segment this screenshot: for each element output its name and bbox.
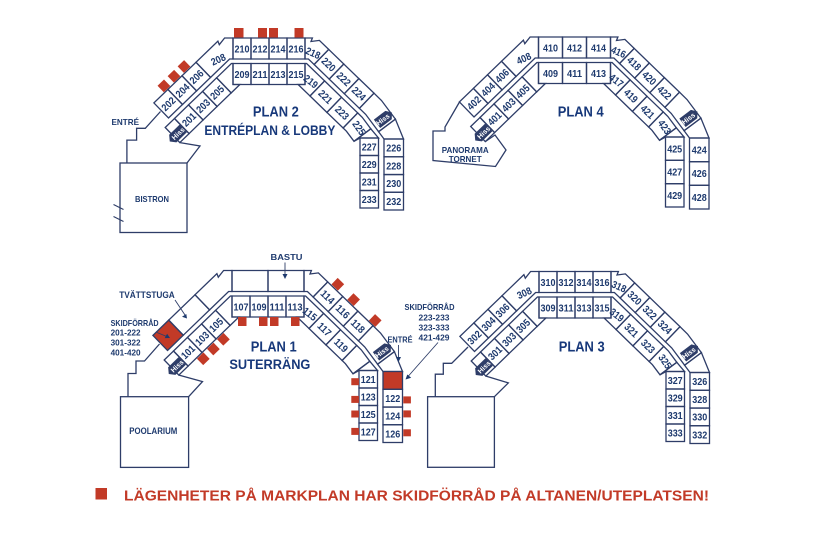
- svg-text:231: 231: [362, 177, 377, 188]
- svg-text:232: 232: [386, 197, 401, 208]
- svg-text:332: 332: [692, 430, 707, 441]
- svg-text:107: 107: [234, 302, 249, 313]
- svg-text:ENTRÉ: ENTRÉ: [112, 117, 140, 127]
- svg-text:429: 429: [667, 191, 682, 202]
- svg-text:401-420: 401-420: [111, 347, 141, 357]
- svg-text:SKIDFÖRRÅD: SKIDFÖRRÅD: [405, 302, 455, 312]
- svg-text:PLAN 4: PLAN 4: [558, 105, 604, 121]
- svg-text:223-233: 223-233: [419, 312, 450, 322]
- svg-text:329: 329: [668, 393, 683, 404]
- svg-text:301-322: 301-322: [111, 337, 141, 347]
- svg-text:428: 428: [692, 193, 707, 204]
- svg-text:LÄGENHETER PÅ MARKPLAN HAR SKI: LÄGENHETER PÅ MARKPLAN HAR SKIDFÖRRÅD PÅ…: [124, 488, 709, 505]
- svg-text:ENTRÉPLAN & LOBBY: ENTRÉPLAN & LOBBY: [204, 123, 335, 138]
- svg-text:PLAN 1: PLAN 1: [251, 340, 297, 356]
- svg-text:326: 326: [692, 377, 707, 388]
- svg-text:313: 313: [577, 303, 592, 314]
- svg-text:316: 316: [595, 278, 610, 289]
- svg-text:409: 409: [543, 69, 558, 80]
- svg-text:BASTU: BASTU: [271, 252, 303, 262]
- svg-text:ENTRÉ: ENTRÉ: [388, 335, 413, 345]
- svg-text:424: 424: [692, 146, 707, 157]
- svg-text:233: 233: [362, 195, 377, 206]
- svg-text:210: 210: [235, 44, 250, 55]
- svg-text:PLAN 3: PLAN 3: [559, 339, 605, 355]
- svg-text:310: 310: [541, 278, 556, 289]
- svg-text:413: 413: [591, 69, 606, 80]
- svg-text:122: 122: [385, 394, 400, 405]
- svg-text:SUTERRÄNG: SUTERRÄNG: [229, 357, 310, 372]
- svg-text:228: 228: [386, 161, 401, 172]
- svg-text:312: 312: [559, 278, 574, 289]
- svg-text:213: 213: [271, 70, 286, 81]
- svg-text:229: 229: [362, 160, 377, 171]
- svg-text:314: 314: [577, 278, 592, 289]
- svg-text:227: 227: [362, 142, 377, 153]
- svg-text:412: 412: [567, 43, 582, 54]
- svg-text:333: 333: [668, 428, 683, 439]
- svg-text:109: 109: [252, 302, 267, 313]
- svg-text:TORNET: TORNET: [449, 154, 483, 164]
- svg-text:327: 327: [668, 376, 683, 387]
- svg-text:421-429: 421-429: [419, 332, 450, 342]
- svg-text:215: 215: [289, 70, 304, 81]
- svg-text:230: 230: [386, 179, 401, 190]
- svg-text:216: 216: [289, 44, 304, 55]
- svg-text:315: 315: [595, 303, 610, 314]
- svg-text:323-333: 323-333: [419, 322, 450, 332]
- svg-text:331: 331: [668, 411, 683, 422]
- svg-text:410: 410: [543, 43, 558, 54]
- svg-text:425: 425: [667, 144, 682, 155]
- svg-text:POOLARIUM: POOLARIUM: [129, 426, 177, 436]
- svg-text:426: 426: [692, 169, 707, 180]
- svg-text:328: 328: [692, 395, 707, 406]
- svg-text:309: 309: [541, 303, 556, 314]
- svg-text:209: 209: [235, 70, 250, 81]
- svg-text:TVÄTTSTUGA: TVÄTTSTUGA: [119, 290, 175, 300]
- svg-text:411: 411: [567, 69, 582, 80]
- svg-text:201-222: 201-222: [111, 327, 141, 337]
- svg-text:214: 214: [271, 44, 286, 55]
- svg-text:427: 427: [667, 168, 682, 179]
- svg-text:212: 212: [253, 44, 268, 55]
- svg-text:SKIDFÖRRÅD: SKIDFÖRRÅD: [111, 318, 159, 328]
- svg-text:330: 330: [692, 413, 707, 424]
- svg-text:126: 126: [385, 429, 400, 440]
- svg-text:127: 127: [361, 427, 376, 438]
- svg-text:BISTRON: BISTRON: [135, 194, 169, 204]
- svg-text:121: 121: [361, 375, 376, 386]
- svg-text:125: 125: [361, 410, 376, 421]
- svg-text:113: 113: [288, 302, 303, 313]
- svg-text:124: 124: [385, 412, 400, 423]
- svg-text:123: 123: [361, 392, 376, 403]
- svg-text:311: 311: [559, 303, 574, 314]
- svg-text:211: 211: [253, 70, 268, 81]
- svg-text:226: 226: [386, 144, 401, 155]
- svg-text:414: 414: [591, 43, 606, 54]
- svg-text:PLAN 2: PLAN 2: [253, 104, 299, 120]
- svg-text:111: 111: [270, 302, 285, 313]
